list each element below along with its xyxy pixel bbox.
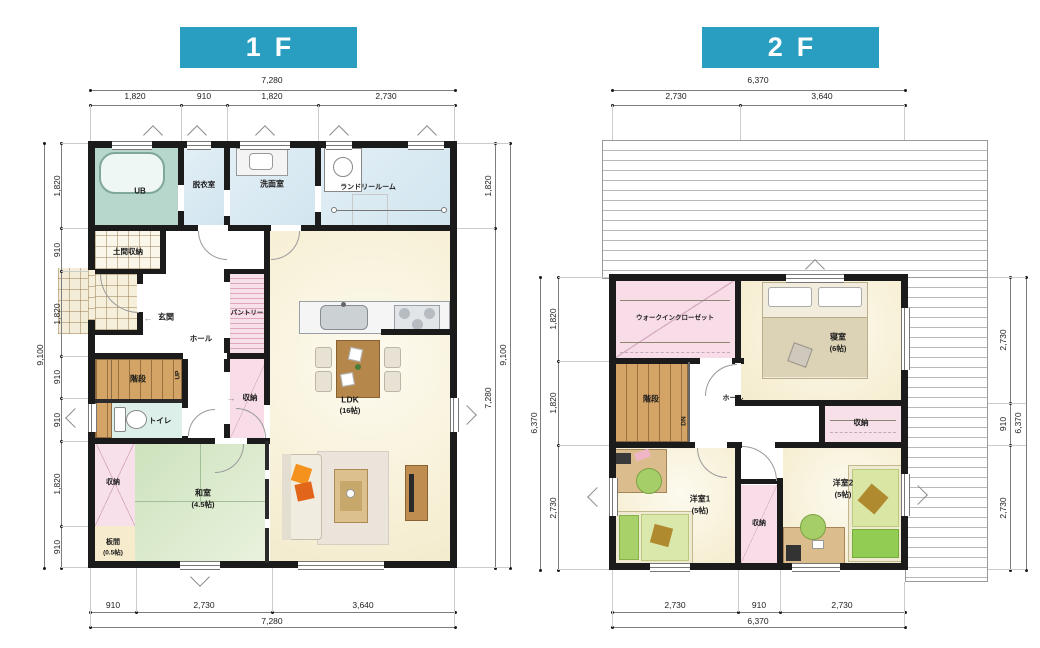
dim-label: 910 [197,91,211,101]
table-plant [355,364,361,370]
printer [786,545,801,561]
label-closet-east: 収納 [854,419,869,427]
pillow-green [852,529,899,558]
dim-label: 2,730 [193,600,214,610]
label-dn: DN [681,416,688,425]
dim-label: 6,370 [1013,412,1023,433]
dim-label: 1,820 [124,91,145,101]
burner [399,308,410,319]
window-chevron-icon [587,487,607,507]
dim-label: 2,730 [998,497,1008,518]
pole-end [441,207,447,213]
label-bedroom-size: (6帖) [830,345,847,353]
label-west2-size: (5帖) [835,491,852,499]
bathtub [99,152,165,194]
roof-right [905,277,988,582]
sofa-back [282,454,291,540]
window [901,308,910,370]
dim-label: 9,100 [498,344,508,365]
label-closet-sw: 収納 [106,479,120,487]
blanket [763,317,867,377]
label-laundry: ランドリールーム [340,184,396,192]
chair-west1 [636,468,662,494]
washing-machine-drum [333,157,353,177]
drying-pole [334,210,444,211]
label-closet-hall: 収納 [243,394,258,402]
chair [315,371,332,392]
faucet [341,302,346,307]
label-up: UP [175,370,182,379]
label-closet-center: 収納 [752,520,766,528]
leader-arrow-icon: → [227,393,236,403]
window [609,478,618,516]
pillow [768,287,812,307]
floor2-title: 2F [702,27,879,68]
dim-label: 2,730 [998,329,1008,350]
label-washitsu-size: (4.5帖) [192,501,215,509]
placemat [348,347,363,362]
label-ldk: LDK [341,395,358,404]
window [112,141,152,150]
door-arc [188,409,215,436]
dim-label: 6,370 [747,616,768,626]
dim-label: 1,820 [548,392,558,413]
closet-shelf [830,432,896,433]
dim-label: 1,820 [483,175,493,196]
dim-label: 7,280 [261,75,282,85]
pillow-green [619,515,639,560]
dim-label: 910 [752,600,766,610]
dim-label: 910 [998,417,1008,431]
door-arc [198,231,227,260]
wic-rod [620,300,730,301]
cup [346,489,355,498]
window [792,563,840,572]
dim-label: 2,730 [665,91,686,101]
burner [424,308,435,319]
label-dressing: 脱衣室 [193,181,216,189]
label-wic: ウォークインクローゼット [636,314,714,321]
cushion-orange [294,481,314,501]
window [88,404,97,432]
wic-rod [620,342,730,343]
kitchen-sink [320,305,368,330]
label-itama: 板間 [106,539,120,547]
dim-label: 6,370 [529,412,539,433]
chair [315,347,332,368]
label-bedroom: 寝室 [830,334,846,343]
label-west2: 洋室2 [833,480,853,489]
dim-label: 7,280 [483,387,493,408]
dim-label: 1,820 [548,308,558,329]
label-toilet: トイレ [149,417,172,425]
chair [384,371,401,392]
label-genkan: 玄関 [158,314,174,323]
roof-top [602,140,988,279]
leader-arrow-icon: ← [144,313,153,323]
dim-label: 3,640 [811,91,832,101]
dim-label: 7,280 [261,616,282,626]
window-chevron-icon [190,567,210,587]
pole-end [331,207,337,213]
label-west1: 洋室1 [690,496,710,505]
label-hall: ホール [190,335,213,343]
label-washroom: 洗面室 [260,181,284,190]
laptop [616,453,631,464]
label-washitsu: 和室 [195,490,211,499]
label-ub: UB [134,188,146,197]
dim-label: 2,730 [548,497,558,518]
sliding-door [298,561,384,570]
label-stairs: 階段 [130,376,146,385]
toilet-bowl [126,410,147,429]
dim-label: 2,730 [831,600,852,610]
floorplan-canvas: 1F [0,0,1040,648]
dim-label: 3,640 [352,600,373,610]
pillow [818,287,862,307]
window-chevron-icon [457,405,477,425]
dim-label: 6,370 [747,75,768,85]
placemat [340,372,355,387]
toilet-tank [114,407,126,432]
label-pantry: パントリー [231,309,264,316]
window [650,563,690,572]
label-doma: 土間収納 [113,248,143,256]
label-ldk-size: (16帖) [340,407,361,415]
label-stairs2: 階段 [643,396,659,405]
dim-label: 2,730 [664,600,685,610]
chair-west2 [800,514,826,540]
dim-label: 2,730 [375,91,396,101]
vanity-bowl [249,153,273,170]
dim-label: 910 [106,600,120,610]
label-hall2: ホール [723,395,744,403]
chair [384,347,401,368]
window-chevron-icon [65,408,85,428]
label-itama-size: (0.5帖) [103,549,123,556]
paper [812,540,824,549]
wic-shelf [620,352,730,353]
tv [409,474,414,512]
dim-label: 1,820 [261,91,282,101]
label-west1-size: (5帖) [692,507,709,515]
floor1-title: 1F [180,27,357,68]
